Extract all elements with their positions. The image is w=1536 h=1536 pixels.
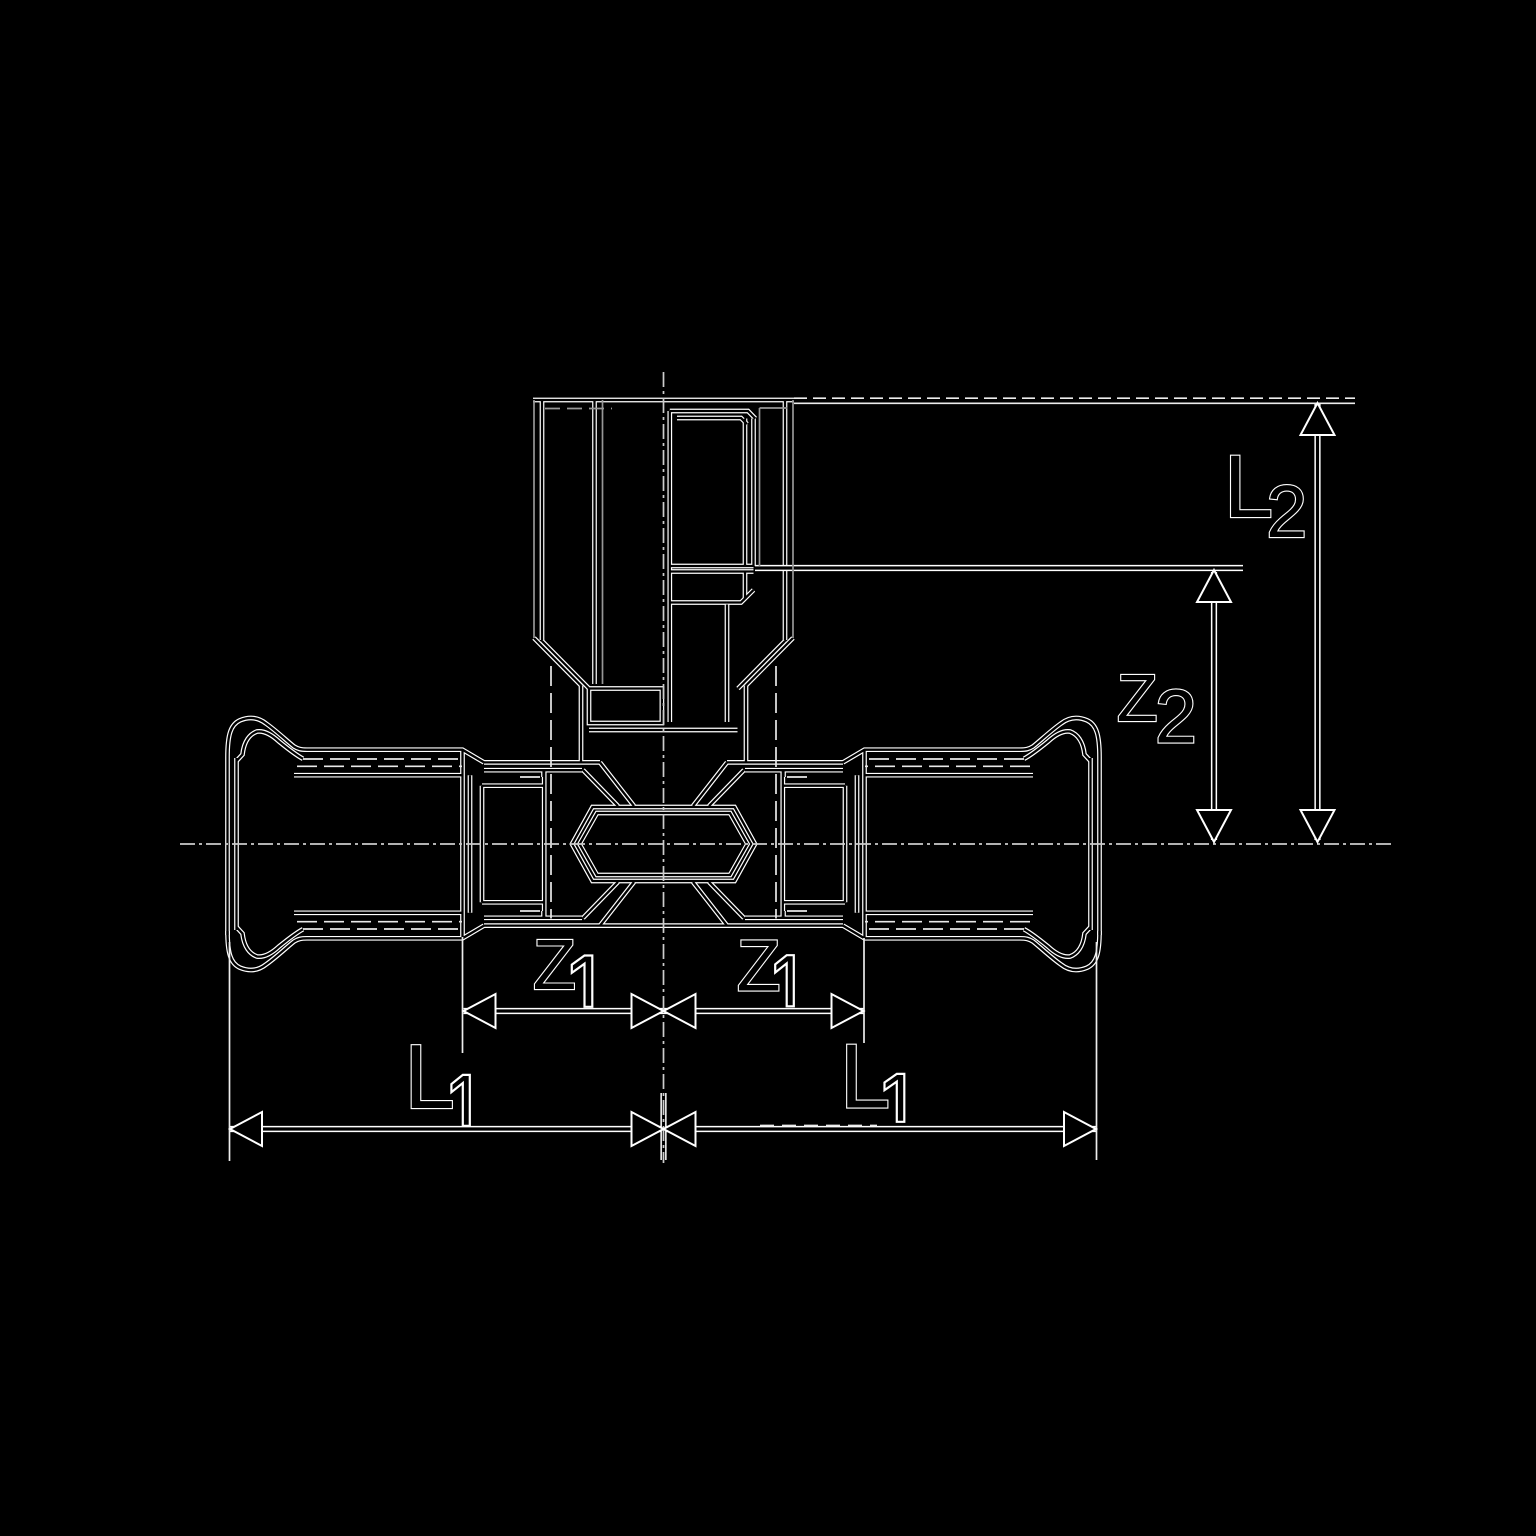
svg-text:Z: Z — [1117, 661, 1158, 736]
svg-text:L: L — [840, 1027, 891, 1128]
svg-text:2: 2 — [1266, 470, 1307, 553]
svg-text:L: L — [404, 1027, 455, 1128]
svg-text:Z: Z — [737, 927, 781, 1007]
svg-text:Z: Z — [533, 926, 576, 1005]
svg-text:2: 2 — [1155, 675, 1197, 760]
